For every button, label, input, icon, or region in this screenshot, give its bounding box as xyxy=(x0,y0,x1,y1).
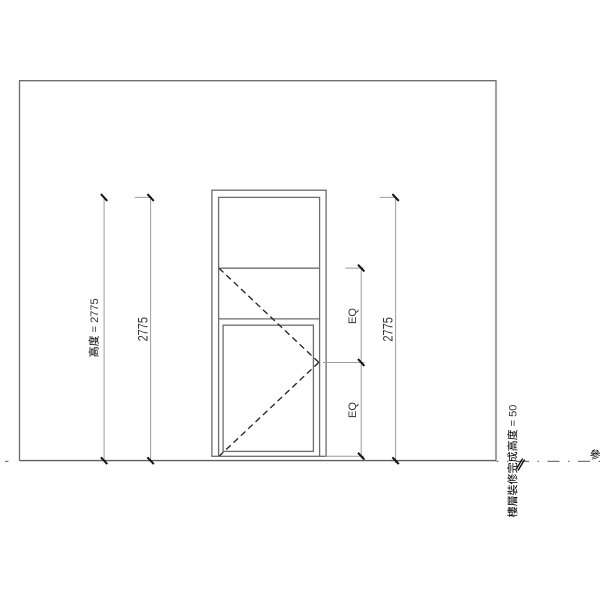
svg-text:EQ: EQ xyxy=(347,402,359,418)
svg-text:= 2775: = 2775 xyxy=(89,298,101,332)
svg-text:EQ: EQ xyxy=(347,308,359,324)
svg-text:2775: 2775 xyxy=(380,317,396,341)
svg-text:= 50: = 50 xyxy=(508,405,520,427)
svg-text:2775: 2775 xyxy=(135,317,151,341)
